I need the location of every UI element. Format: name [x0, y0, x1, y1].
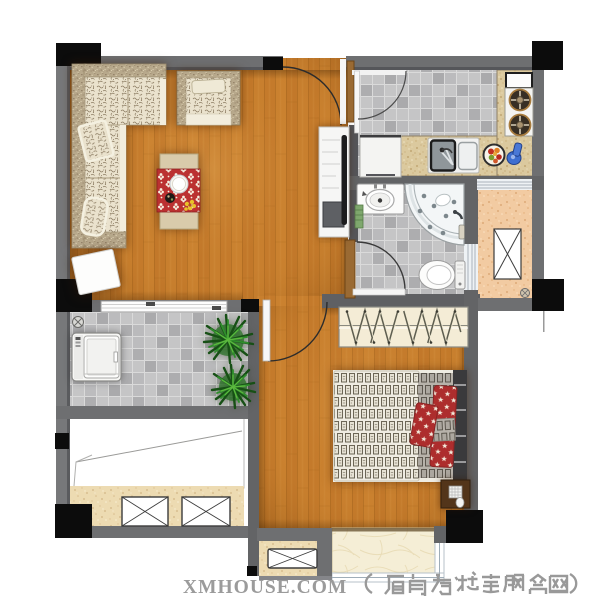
svg-text:XMHOUSE.COM: XMHOUSE.COM — [183, 577, 347, 598]
